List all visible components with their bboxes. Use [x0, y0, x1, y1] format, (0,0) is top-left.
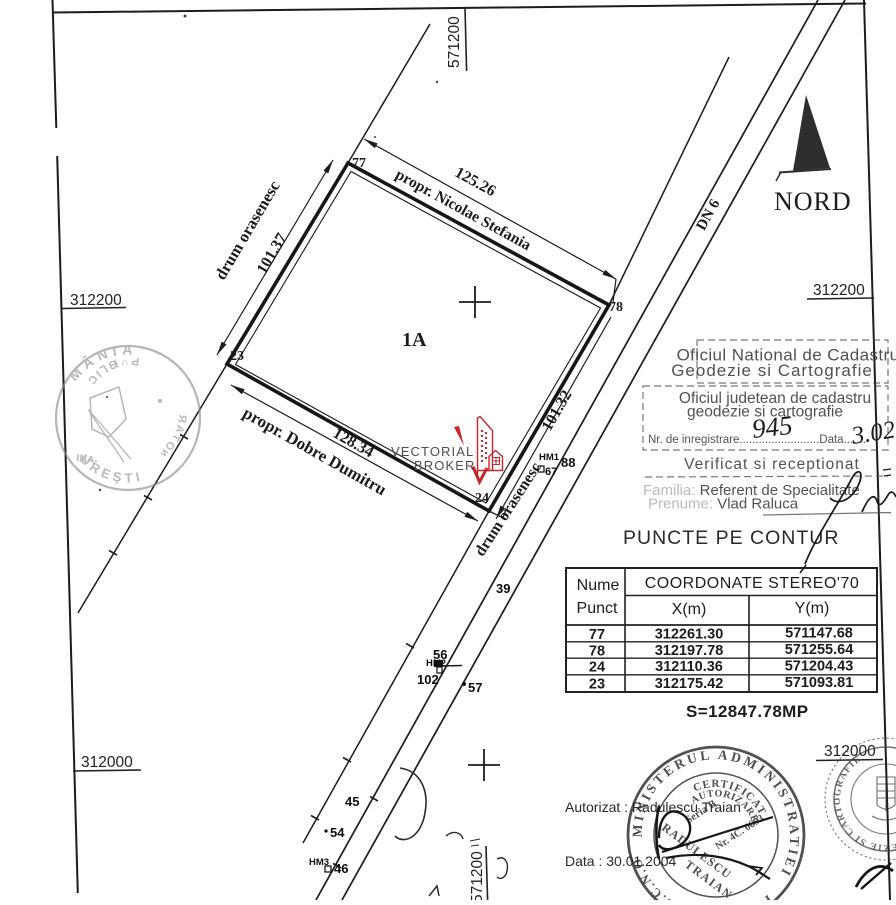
svg-text:77: 77 [589, 627, 605, 643]
svg-text:571093.81: 571093.81 [785, 675, 854, 691]
svg-text:Geodezie si Cartografie: Geodezie si Cartografie [671, 361, 873, 380]
svg-text:57: 57 [468, 680, 482, 695]
svg-text:67: 67 [545, 466, 557, 478]
svg-text:NORD: NORD [774, 187, 852, 216]
svg-text:VECTORIAL: VECTORIAL [391, 444, 474, 459]
svg-text:102: 102 [417, 672, 439, 687]
svg-text:39: 39 [496, 581, 510, 596]
svg-text:312197.78: 312197.78 [655, 643, 724, 659]
svg-text:Punct: Punct [577, 600, 618, 617]
svg-text:24: 24 [475, 491, 489, 506]
svg-text:312200: 312200 [813, 282, 865, 299]
svg-text:23: 23 [230, 349, 244, 364]
svg-text:Y(m): Y(m) [795, 600, 830, 617]
svg-text:571204.43: 571204.43 [785, 659, 854, 675]
svg-text:312200: 312200 [70, 292, 122, 309]
svg-text:1A: 1A [402, 329, 427, 351]
svg-text:312261.30: 312261.30 [655, 627, 724, 643]
svg-text:88: 88 [561, 455, 575, 470]
svg-text:78: 78 [609, 300, 623, 315]
svg-text:77: 77 [352, 156, 366, 171]
svg-text:Prenume: Vlad Raluca: Prenume: Vlad Raluca [648, 496, 799, 513]
svg-text:Nume: Nume [577, 577, 620, 594]
svg-text:HM1: HM1 [539, 452, 560, 463]
svg-text:X(m): X(m) [672, 601, 707, 618]
svg-text:24: 24 [589, 660, 605, 676]
svg-text:312000: 312000 [81, 754, 133, 771]
svg-text:571200: 571200 [469, 851, 486, 900]
svg-text:312000: 312000 [824, 743, 876, 760]
svg-text:46: 46 [334, 861, 348, 876]
svg-text:312175.42: 312175.42 [655, 676, 724, 692]
svg-text:571255.64: 571255.64 [785, 642, 854, 658]
svg-text:23: 23 [589, 677, 605, 693]
svg-text:Verificat si receptionat: Verificat si receptionat [684, 456, 860, 473]
svg-text:54: 54 [330, 825, 345, 840]
svg-text:78: 78 [589, 644, 605, 660]
svg-text:45: 45 [345, 794, 359, 809]
svg-text:COORDONATE STEREO'70: COORDONATE STEREO'70 [645, 575, 860, 592]
svg-text:571200: 571200 [446, 16, 463, 68]
svg-text:571147.68: 571147.68 [785, 626, 853, 642]
svg-text:312110.36: 312110.36 [655, 659, 723, 675]
svg-text:BROKER: BROKER [414, 458, 476, 473]
svg-text:S=12847.78MP: S=12847.78MP [686, 702, 808, 721]
svg-text:PUNCTE PE CONTUR: PUNCTE PE CONTUR [623, 527, 839, 549]
svg-text:945: 945 [750, 410, 793, 444]
